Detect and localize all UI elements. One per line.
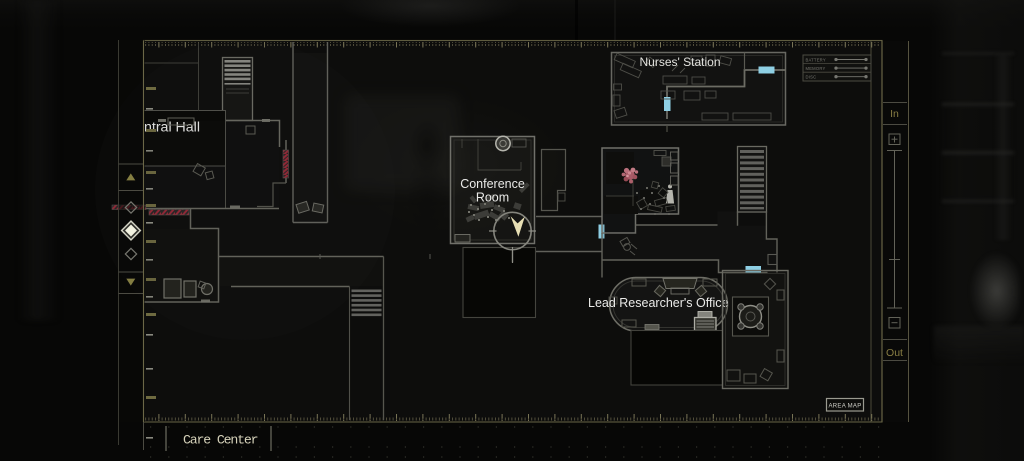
- svg-text:Care Center: Care Center: [183, 433, 258, 448]
